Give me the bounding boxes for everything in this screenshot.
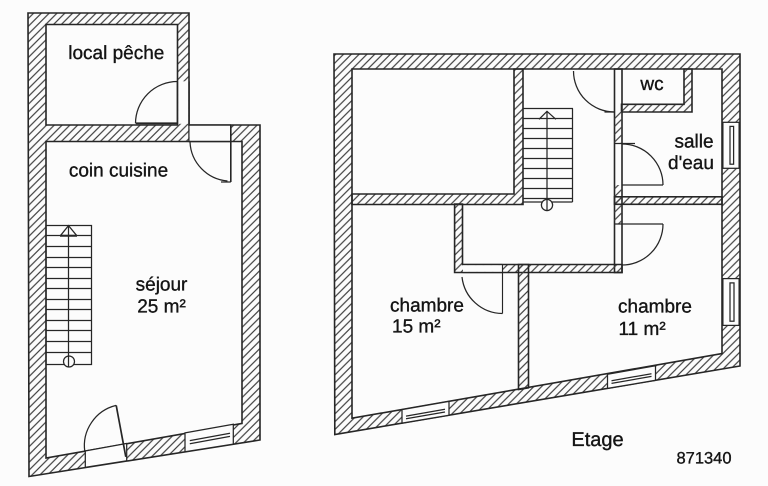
svg-text:25 m²: 25 m² [137, 297, 186, 318]
svg-text:15 m²: 15 m² [392, 317, 441, 338]
svg-text:Etage: Etage [571, 429, 623, 451]
svg-text:871340: 871340 [676, 450, 731, 468]
svg-text:coin cuisine: coin cuisine [69, 161, 168, 182]
svg-text:séjour: séjour [136, 275, 188, 296]
svg-text:d'eau: d'eau [668, 153, 714, 174]
svg-text:chambre: chambre [390, 296, 464, 317]
svg-text:chambre: chambre [618, 296, 692, 317]
svg-text:11 m²: 11 m² [619, 319, 666, 340]
svg-text:salle: salle [674, 132, 713, 153]
svg-text:local pêche: local pêche [68, 43, 164, 64]
svg-text:wc: wc [639, 74, 663, 95]
